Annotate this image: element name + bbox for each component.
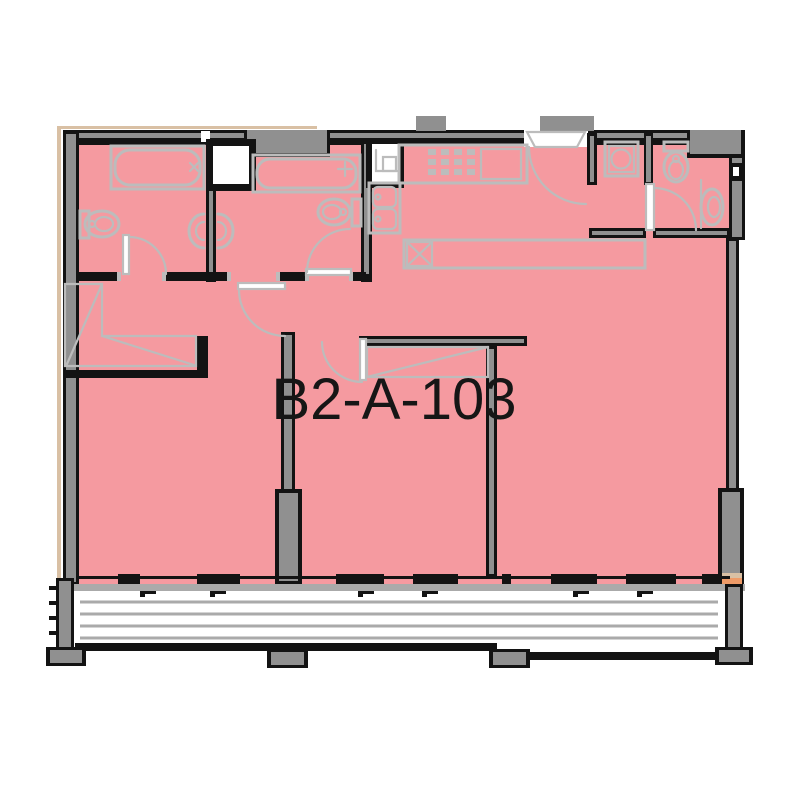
column-footing — [489, 649, 530, 668]
column-footing — [267, 649, 308, 668]
wall-fixture — [730, 163, 742, 181]
column-footing — [715, 647, 753, 665]
unit-label: B2-A-103 — [271, 367, 516, 432]
floor-plan: B2-A-103 — [0, 0, 800, 800]
balcony-front-edge — [525, 652, 719, 660]
window-band — [63, 574, 745, 597]
duct-block — [247, 130, 327, 153]
unit-highlight — [78, 142, 731, 584]
column-footing — [46, 647, 86, 666]
window-tick-marks — [140, 591, 653, 597]
balcony-deck-icon — [80, 602, 718, 638]
shaft-block — [690, 130, 741, 154]
window-icon — [118, 574, 722, 584]
floor-plan-canvas: B2-A-103 — [0, 0, 800, 800]
